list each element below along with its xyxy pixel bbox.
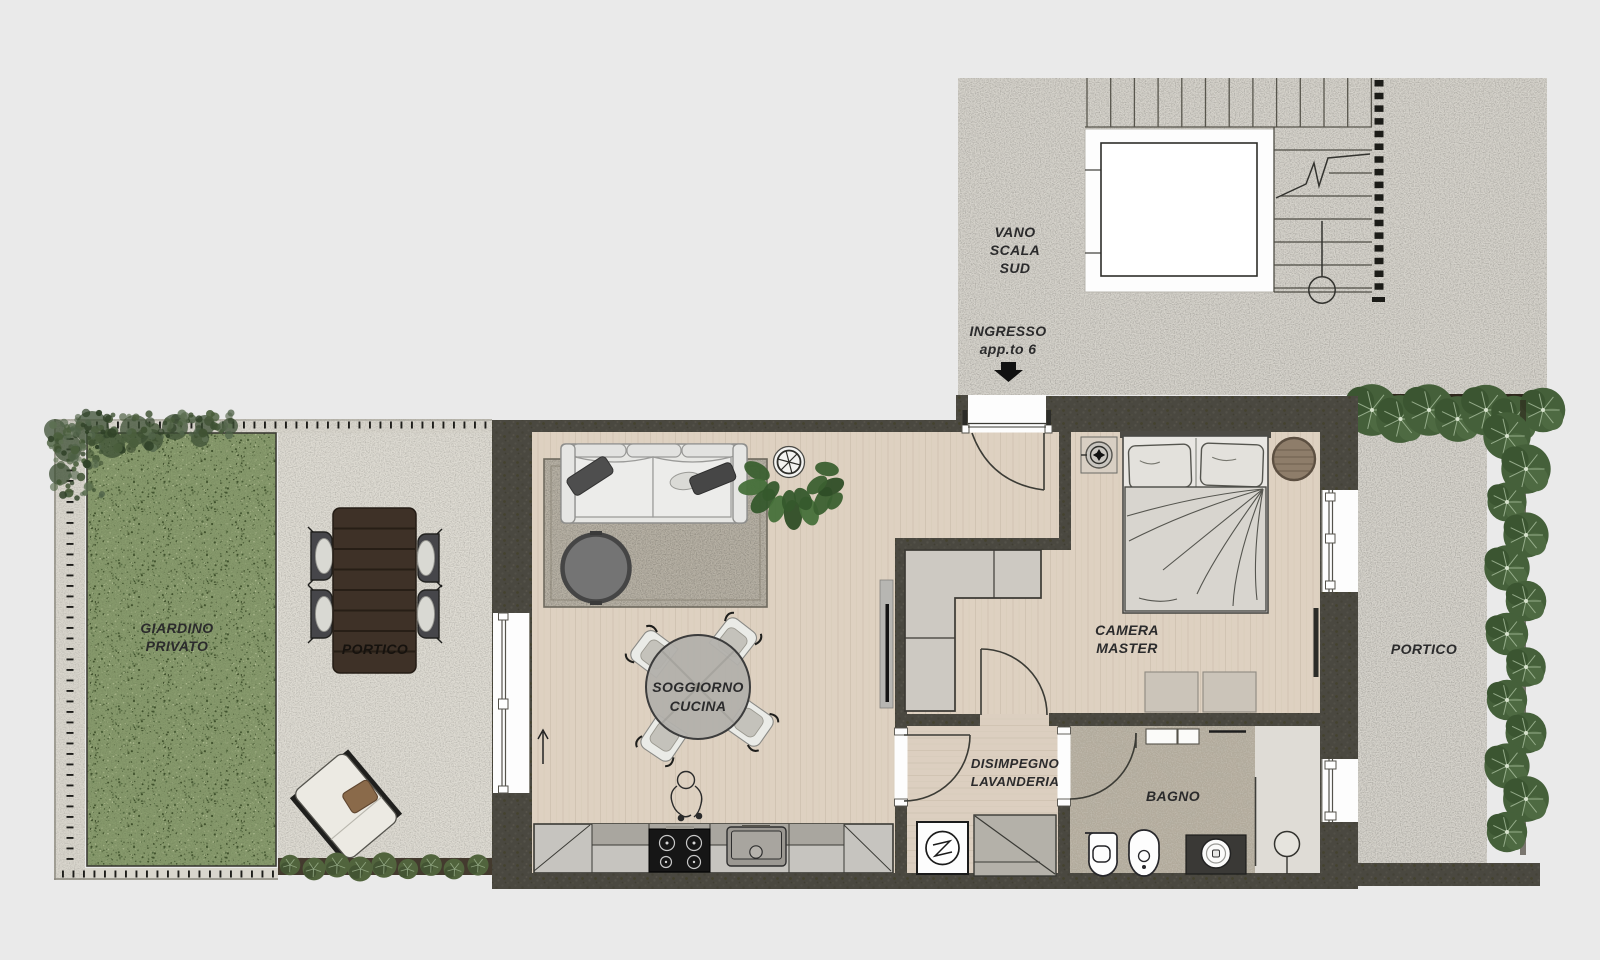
svg-text:CUCINA: CUCINA — [670, 698, 727, 714]
svg-text:MASTER: MASTER — [1096, 640, 1158, 656]
svg-text:LAVANDERIA: LAVANDERIA — [971, 774, 1060, 789]
svg-text:VANO: VANO — [994, 224, 1035, 240]
svg-text:SCALA: SCALA — [990, 242, 1040, 258]
svg-text:GIARDINO: GIARDINO — [140, 620, 213, 636]
svg-text:SUD: SUD — [1000, 260, 1031, 276]
svg-text:DISIMPEGNO: DISIMPEGNO — [971, 756, 1060, 771]
svg-text:SOGGIORNO: SOGGIORNO — [652, 679, 744, 695]
svg-text:BAGNO: BAGNO — [1146, 788, 1200, 804]
svg-text:app.to 6: app.to 6 — [980, 341, 1037, 357]
svg-text:PORTICO: PORTICO — [342, 641, 408, 657]
svg-text:PORTICO: PORTICO — [1391, 641, 1457, 657]
svg-text:CAMERA: CAMERA — [1095, 622, 1159, 638]
svg-text:PRIVATO: PRIVATO — [146, 638, 209, 654]
svg-text:INGRESSO: INGRESSO — [969, 323, 1046, 339]
